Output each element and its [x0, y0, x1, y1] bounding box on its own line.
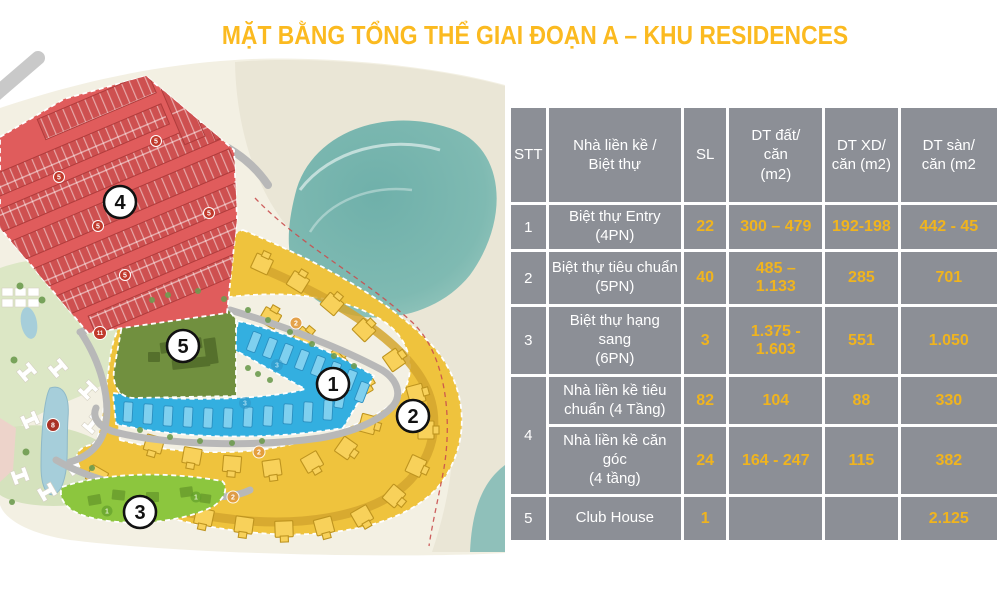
table-cell: 40	[682, 251, 727, 306]
header-dt-dat: DT đất/ căn (m2)	[728, 107, 824, 204]
header-sl: SL	[682, 107, 727, 204]
minor-marker: 2	[257, 450, 261, 457]
table-cell: 4	[510, 376, 548, 496]
table-cell: 115	[824, 426, 899, 496]
table-cell: 285	[824, 251, 899, 306]
minor-marker: 5	[123, 273, 127, 280]
minor-marker: 5	[96, 224, 100, 231]
table-row: 1 Biệt thự Entry (4PN) 22 300 – 479 192-…	[510, 204, 999, 251]
header-type: Nhà liền kề / Biệt thự	[547, 107, 682, 204]
table-cell: 82	[682, 376, 727, 426]
minor-marker: 2	[231, 495, 235, 502]
residences-table: STT Nhà liền kề / Biệt thự SL DT đất/ că…	[508, 105, 1000, 543]
table-row: 3 Biệt thự hạng sang (6PN) 3 1.375 - 1.6…	[510, 306, 999, 376]
table-cell: Nhà liền kề tiêu chuẩn (4 Tầng)	[547, 376, 682, 426]
zone-marker-label: 3	[134, 502, 145, 524]
minor-marker: 1	[194, 495, 198, 502]
minor-marker: 3	[275, 363, 279, 370]
table-cell: 3	[682, 306, 727, 376]
zone-marker-label: 5	[177, 336, 188, 358]
zone-marker-5: 5	[167, 330, 199, 362]
table-cell: 701	[899, 251, 998, 306]
table-cell: 1.050	[899, 306, 998, 376]
zone-marker-label: 4	[114, 192, 126, 214]
table-row: 4 Nhà liền kề tiêu chuẩn (4 Tầng) 82 104…	[510, 376, 999, 426]
header-stt: STT	[510, 107, 548, 204]
table-cell: 24	[682, 426, 727, 496]
table-cell: 104	[728, 376, 824, 426]
zone-marker-1: 1	[317, 368, 349, 400]
table-cell: 2.125	[899, 496, 998, 542]
zone-marker-label: 2	[407, 406, 418, 428]
lake	[41, 387, 68, 495]
table-cell: Biệt thự Entry (4PN)	[547, 204, 682, 251]
table-cell: 382	[899, 426, 998, 496]
zone-marker-label: 1	[327, 374, 338, 396]
zone-marker-2: 2	[397, 400, 429, 432]
zone-marker-3: 3	[124, 496, 156, 528]
site-plan-map: 5 5 5 5 5 11 8 2 2 2 3 3 1 1 4 5 1 2 3	[0, 0, 505, 600]
minor-marker: 2	[294, 321, 298, 328]
minor-marker: 5	[154, 139, 158, 146]
minor-marker: 1	[105, 509, 109, 516]
minor-marker: 5	[207, 211, 211, 218]
table-row: 5 Club House 1 2.125	[510, 496, 999, 542]
table-cell: Club House	[547, 496, 682, 542]
minor-marker: 8	[51, 423, 55, 430]
table-cell: 442 - 45	[899, 204, 998, 251]
zone-marker-4: 4	[104, 186, 136, 218]
minor-marker: 3	[243, 401, 247, 408]
table-cell: 1	[510, 204, 548, 251]
header-dt-xd: DT XD/ căn (m2)	[824, 107, 899, 204]
table-cell: 5	[510, 496, 548, 542]
slide-page: MẶT BẰNG TỔNG THỂ GIAI ĐOẠN A – KHU RESI…	[0, 0, 1000, 600]
table-cell: 22	[682, 204, 727, 251]
minor-marker: 5	[57, 175, 61, 182]
table-cell: 1	[682, 496, 727, 542]
header-dt-san: DT sàn/ căn (m2	[899, 107, 998, 204]
table-cell	[728, 496, 824, 542]
table-cell: 88	[824, 376, 899, 426]
table-cell: 3	[510, 306, 548, 376]
table-cell: 2	[510, 251, 548, 306]
table-cell: 1.375 - 1.603	[728, 306, 824, 376]
table-cell: 485 – 1.133	[728, 251, 824, 306]
table-row: 2 Biệt thự tiêu chuẩn (5PN) 40 485 – 1.1…	[510, 251, 999, 306]
table-cell: Nhà liền kề căn góc (4 tầng)	[547, 426, 682, 496]
table-cell: 330	[899, 376, 998, 426]
table-cell: 551	[824, 306, 899, 376]
table-cell: 300 – 479	[728, 204, 824, 251]
minor-marker: 11	[97, 331, 104, 337]
table-cell: Biệt thự hạng sang (6PN)	[547, 306, 682, 376]
table-row: Nhà liền kề căn góc (4 tầng) 24 164 - 24…	[510, 426, 999, 496]
table-cell: 192-198	[824, 204, 899, 251]
table-cell	[824, 496, 899, 542]
table-cell: Biệt thự tiêu chuẩn (5PN)	[547, 251, 682, 306]
table-cell: 164 - 247	[728, 426, 824, 496]
